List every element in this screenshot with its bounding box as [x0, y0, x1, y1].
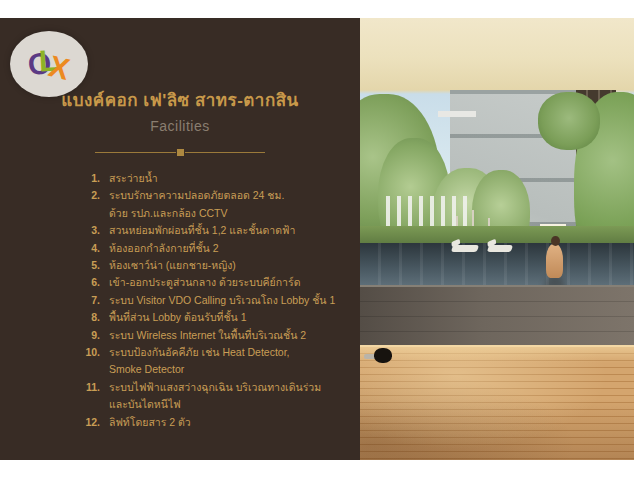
list-item: 11.ระบบไฟฟ้าแสงสว่างฉุกเฉิน บริเวณทางเดิ…: [80, 379, 352, 414]
list-item: 2.ระบบรักษาความปลอดภัยตลอด 24 ชม. ด้วย ร…: [80, 187, 352, 222]
item-text: ระบบรักษาความปลอดภัยตลอด 24 ชม. ด้วย รปภ…: [109, 187, 284, 222]
item-number: 9.: [80, 327, 100, 344]
listing-image: O L X แบงค์คอก เฟ'ลิซ สาทร-ตากสิน Facili…: [0, 0, 640, 480]
balcony-slab: [438, 111, 476, 117]
list-item: 9.ระบบ Wireless Internet ในพื้นที่บริเวณ…: [80, 327, 352, 344]
item-text: สวนหย่อมพักผ่อนที่ชั้น 1,2 และชั้นดาดฟ้า: [109, 222, 295, 239]
item-text: ระบบป้องกันอัคคีภัย เช่น Heat Detector, …: [109, 344, 290, 379]
list-item: 12.ลิฟท์โดยสาร 2 ตัว: [80, 414, 352, 431]
item-number: 6.: [80, 274, 100, 291]
list-item: 4.ห้องออกกำลังกายที่ชั้น 2: [80, 240, 352, 257]
content-area: O L X แบงค์คอก เฟ'ลิซ สาทร-ตากสิน Facili…: [0, 18, 634, 460]
wood-deck: [360, 345, 634, 460]
list-item: 8.พื้นที่ส่วน Lobby ต้อนรับที่ชั้น 1: [80, 309, 352, 326]
item-number: 5.: [80, 257, 100, 274]
item-text: พื้นที่ส่วน Lobby ต้อนรับที่ชั้น 1: [109, 309, 247, 326]
list-item: 1.สระว่ายน้ำ: [80, 170, 352, 187]
item-text: ระบบ Wireless Internet ในพื้นที่บริเวณชั…: [109, 327, 306, 344]
list-item: 3.สวนหย่อมพักผ่อนที่ชั้น 1,2 และชั้นดาดฟ…: [80, 222, 352, 239]
item-number: 10.: [80, 344, 100, 379]
person-hair: [551, 236, 560, 246]
courtyard-render-photo: [360, 18, 634, 460]
person-body: [546, 244, 563, 278]
title-divider: [95, 149, 265, 156]
tree-foliage: [538, 92, 600, 150]
item-number: 2.: [80, 187, 100, 222]
item-text: ระบบ Visitor VDO Calling บริเวณโถง Lobby…: [109, 292, 335, 309]
item-text: ระบบไฟฟ้าแสงสว่างฉุกเฉิน บริเวณทางเดินร่…: [109, 379, 321, 414]
item-number: 7.: [80, 292, 100, 309]
list-item: 5.ห้องเซาว์น่า (แยกชาย-หญิง): [80, 257, 352, 274]
item-text: ห้องออกกำลังกายที่ชั้น 2: [109, 240, 219, 257]
item-text: สระว่ายน้ำ: [109, 170, 158, 187]
item-number: 12.: [80, 414, 100, 431]
item-number: 11.: [80, 379, 100, 414]
facilities-list: 1.สระว่ายน้ำ 2.ระบบรักษาความปลอดภัยตลอด …: [80, 170, 352, 431]
item-text: เข้า-ออกประตูส่วนกลาง ด้วยระบบคีย์การ์ด: [109, 274, 300, 291]
pool-lounger: [451, 245, 479, 252]
project-title: แบงค์คอก เฟ'ลิซ สาทร-ตากสิน: [0, 86, 360, 113]
divider-line-right: [185, 152, 266, 154]
facilities-panel: O L X แบงค์คอก เฟ'ลิซ สาทร-ตากสิน Facili…: [0, 18, 360, 460]
item-text: ลิฟท์โดยสาร 2 ตัว: [109, 414, 191, 431]
divider-square-icon: [177, 149, 184, 156]
item-number: 8.: [80, 309, 100, 326]
list-item: 7.ระบบ Visitor VDO Calling บริเวณโถง Lob…: [80, 292, 352, 309]
item-number: 4.: [80, 240, 100, 257]
list-item: 6.เข้า-ออกประตูส่วนกลาง ด้วยระบบคีย์การ์…: [80, 274, 352, 291]
item-text: ห้องเซาว์น่า (แยกชาย-หญิง): [109, 257, 236, 274]
facilities-heading: Facilities: [0, 118, 360, 134]
pool-lounger: [487, 245, 513, 252]
stone-terrace: [360, 285, 634, 347]
item-number: 1.: [80, 170, 100, 187]
divider-line-left: [95, 152, 176, 154]
item-number: 3.: [80, 222, 100, 239]
deck-object: [364, 348, 398, 364]
deck-object-knob: [374, 348, 392, 363]
list-item: 10.ระบบป้องกันอัคคีภัย เช่น Heat Detecto…: [80, 344, 352, 379]
